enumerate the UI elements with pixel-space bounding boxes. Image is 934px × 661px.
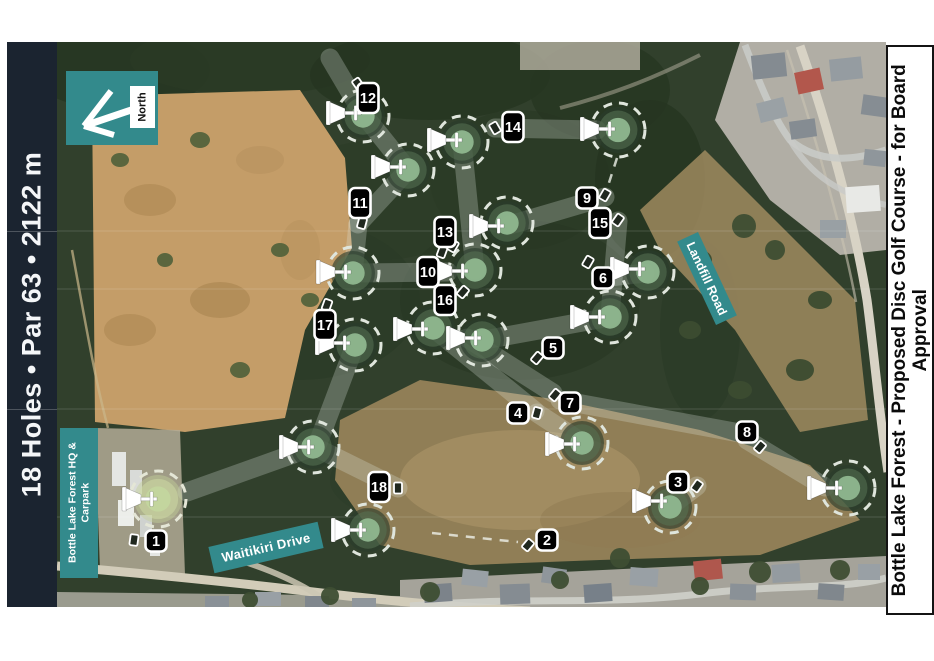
building [500,583,531,604]
poster-title: Bottle Lake Forest - Proposed Disc Golf … [889,58,932,603]
hole-number: 16 [437,293,453,309]
tee-marker [394,483,402,494]
map-canvas: 123456789101112131415161718 [57,42,886,607]
hole-number: 6 [599,271,607,287]
tee-marker [532,407,543,420]
left-sidebar: 18 Holes • Par 63 • 2122 m [7,42,57,607]
building [205,596,229,607]
hole-number: 12 [360,91,376,107]
hole-number: 9 [583,191,591,207]
hq-carpark-label: Bottle Lake Forest HQ & Carpark [60,428,98,578]
building [789,118,817,139]
north-label-box: North [130,86,155,128]
hole-number: 7 [566,396,574,412]
hole-number: 2 [543,533,551,549]
hole-number: 18 [371,480,387,496]
building [858,564,880,580]
hole-number: 13 [437,225,453,241]
north-label: North [137,92,149,121]
hole-number: 3 [674,475,682,491]
building [771,563,800,583]
building [817,583,844,601]
building [845,185,881,213]
hole-number: 14 [505,120,521,136]
fold-line [7,231,57,232]
hole-number: 17 [317,318,333,334]
building [829,56,863,81]
hole-number: 15 [592,216,608,232]
building [461,569,489,588]
fold-line [7,409,57,410]
hole-number: 10 [420,265,436,281]
building [352,598,376,607]
hole-number: 8 [743,425,751,441]
building [751,52,787,79]
tee-marker [129,534,138,546]
satellite-map: 123456789101112131415161718 [57,42,886,607]
building [861,94,886,117]
hole-number: 11 [352,196,367,212]
hole-number: 4 [514,406,522,422]
building [820,220,846,238]
right-title-panel: Bottle Lake Forest - Proposed Disc Golf … [886,45,934,615]
building [112,452,126,486]
building [255,592,281,606]
hole-number: 5 [549,341,557,357]
north-arrow-box: North [66,71,158,145]
building [863,149,886,167]
building [730,584,757,601]
building [629,567,658,587]
building [583,583,612,603]
hole-number: 1 [152,534,160,550]
course-map-poster: { "left_sidebar": { "text": "18 Holes • … [0,0,934,661]
course-stats-text: 18 Holes • Par 63 • 2122 m [17,152,48,498]
